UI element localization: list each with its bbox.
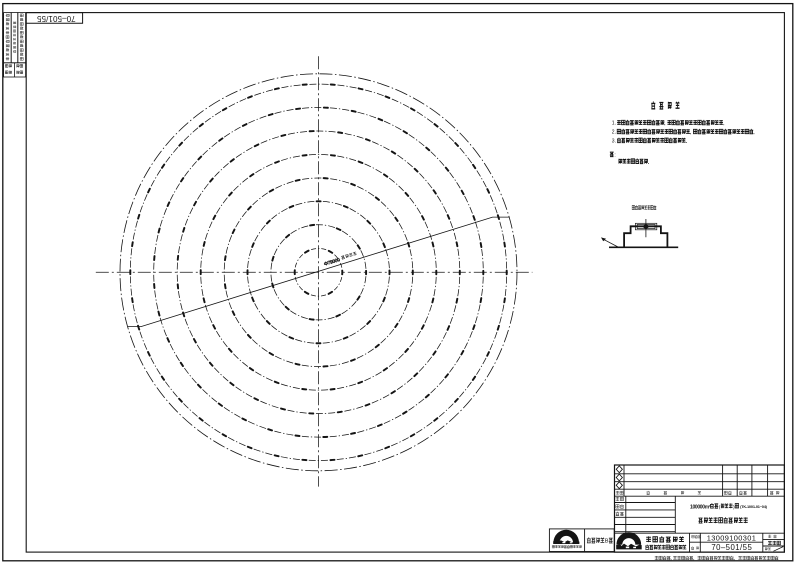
svg-text:70–501/55: 70–501/55 [711, 543, 752, 552]
svg-text:B: B [605, 539, 609, 545]
svg-text:2.: 2. [612, 130, 616, 136]
svg-text:(TK-1001-01~04): (TK-1001-01~04) [740, 504, 768, 509]
svg-text:70–501/55: 70–501/55 [36, 14, 75, 23]
svg-text:100000m³: 100000m³ [690, 505, 711, 511]
svg-text::: : [614, 152, 615, 158]
svg-text:1.: 1. [612, 121, 616, 127]
svg-text:13009100301: 13009100301 [707, 534, 757, 543]
svg-text:3.: 3. [612, 138, 616, 144]
